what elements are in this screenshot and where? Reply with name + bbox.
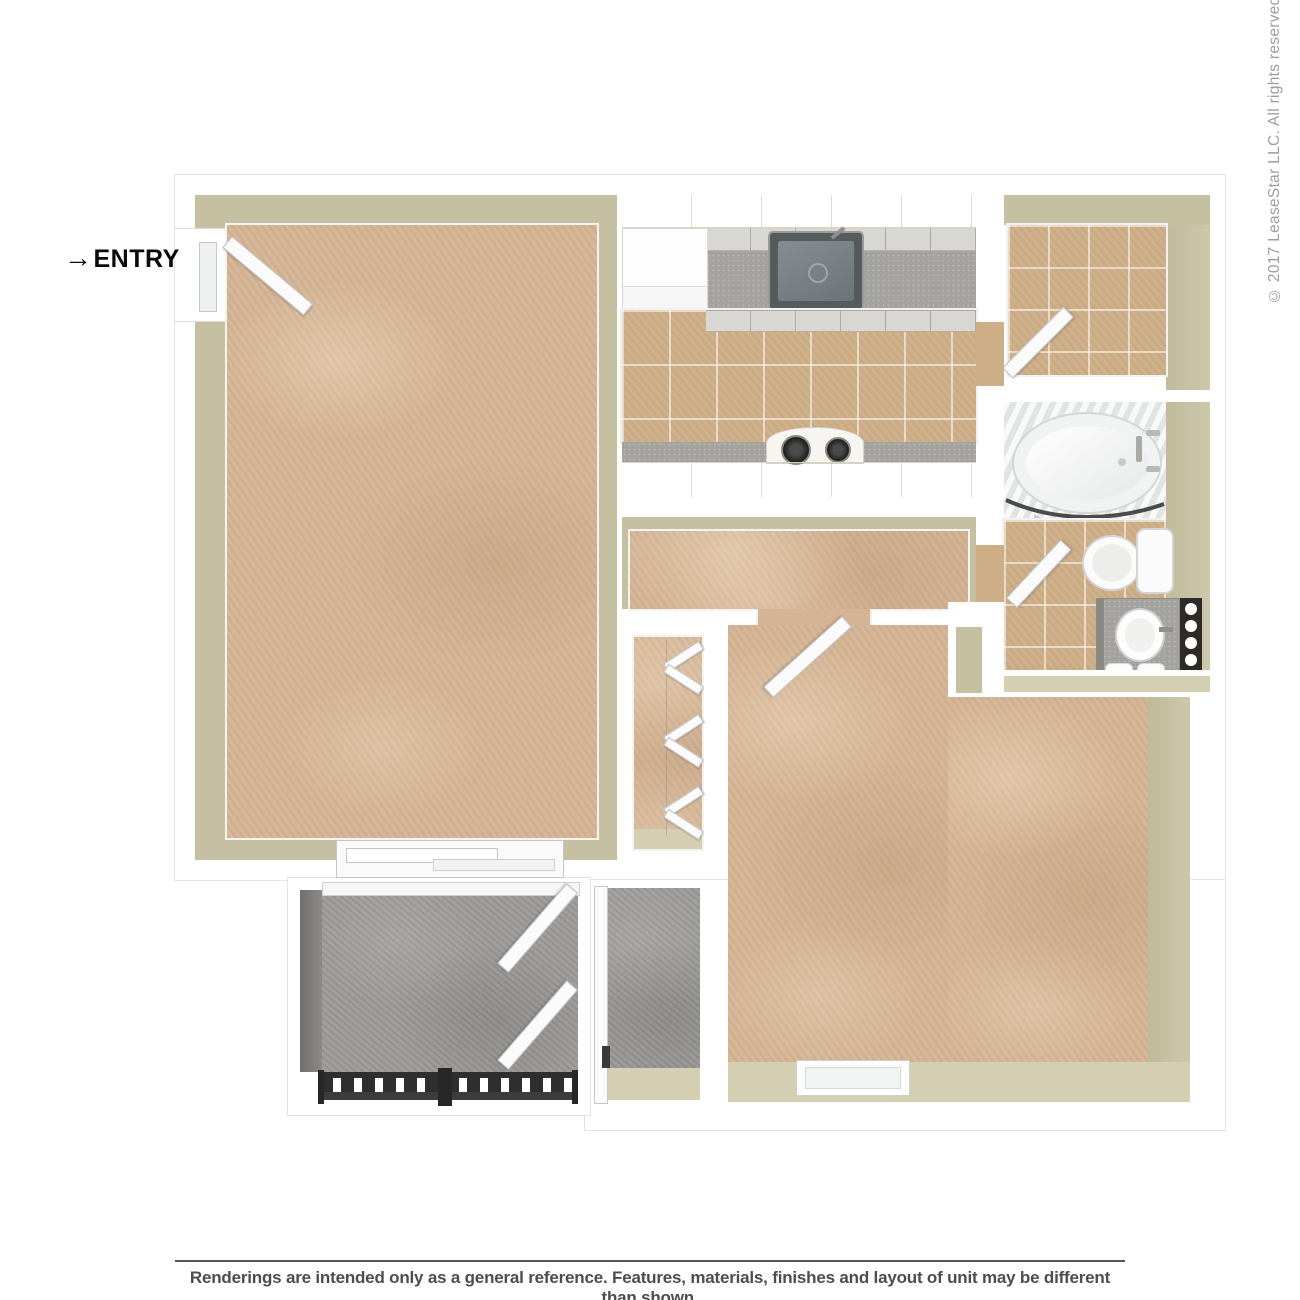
vanity-light-bar: [1180, 598, 1202, 672]
storage-closet-floor: [600, 888, 700, 1068]
vanity-light-bulb: [1185, 654, 1197, 666]
patio-door-track: [322, 882, 580, 896]
stove-burner-right: [825, 437, 851, 463]
bedroom-window-sill: [805, 1067, 901, 1089]
bedroom-window: [796, 1060, 910, 1096]
floorplan-page: →ENTRY © 2017 LeaseStar LLC. All rights …: [0, 0, 1300, 1300]
railing-end-post-left: [318, 1070, 324, 1104]
entry-label: →ENTRY: [64, 242, 180, 274]
vanity-light-bulb: [1185, 620, 1197, 632]
sink-drain: [808, 263, 828, 283]
tub-handle-bottom: [1146, 466, 1160, 472]
wall-face-vertical: [956, 627, 982, 693]
toilet-tank: [1136, 528, 1174, 594]
laundry-doorway: [976, 322, 1004, 386]
patio-railing: [320, 1072, 576, 1102]
railing-end-post-right: [572, 1070, 578, 1104]
bathtub-basin: [1026, 426, 1148, 500]
stove-burner-left: [781, 435, 811, 465]
kitchen-sink: [768, 231, 864, 311]
vanity-counter: [1096, 598, 1180, 674]
storage-door: [594, 886, 608, 1104]
entry-sidelight-window: [199, 242, 217, 312]
disclaimer-text: Renderings are intended only as a genera…: [175, 1268, 1125, 1300]
bedroom-floor-right: [948, 697, 1148, 1062]
tub-faucet: [1136, 436, 1142, 462]
copyright-notice: © 2017 LeaseStar LLC. All rights reserve…: [1266, 12, 1284, 304]
entry-arrow-icon: →: [64, 242, 93, 273]
toilet-seat: [1092, 544, 1132, 582]
tub-handle-top: [1146, 430, 1160, 436]
living-room-floor: [227, 225, 597, 838]
laundry-wall-right: [1166, 225, 1210, 390]
storage-door-shadow: [602, 1046, 610, 1068]
patio-sliding-door: [336, 840, 564, 878]
vanity-sink: [1115, 608, 1165, 662]
vanity-sink-basin: [1125, 618, 1155, 652]
footer-divider: [175, 1260, 1125, 1262]
kitchen-base-cabinets: [622, 462, 976, 497]
stove-cooktop: [766, 427, 864, 464]
bathroom-doorway: [976, 545, 1004, 605]
storage-back-wall-face: [600, 1068, 700, 1100]
kitchen-lower-cabinet-fronts: [706, 310, 976, 332]
tub-drain: [1118, 458, 1126, 466]
refrigerator: [622, 228, 708, 312]
vanity-edge: [1097, 599, 1104, 673]
vanity-faucet: [1159, 627, 1173, 632]
vanity-light-bulb: [1185, 637, 1197, 649]
laundry-wall-top: [1004, 195, 1210, 225]
toilet-bowl: [1082, 535, 1142, 591]
refrigerator-freezer-drawer: [623, 286, 707, 311]
vanity-light-bulb: [1185, 603, 1197, 615]
sliding-door-panel-2: [433, 859, 555, 871]
wall-face-horizontal: [1004, 676, 1210, 692]
kitchen-upper-cabinets: [622, 195, 976, 228]
bedroom-wall-right: [1148, 697, 1190, 1062]
entry-text: ENTRY: [94, 245, 180, 273]
bedroom-floor-left: [728, 625, 948, 1062]
hallway-floor: [630, 531, 968, 609]
patio-wall-shadow: [300, 890, 322, 1072]
bedroom-doorway: [756, 609, 872, 625]
railing-center-post: [438, 1068, 452, 1106]
